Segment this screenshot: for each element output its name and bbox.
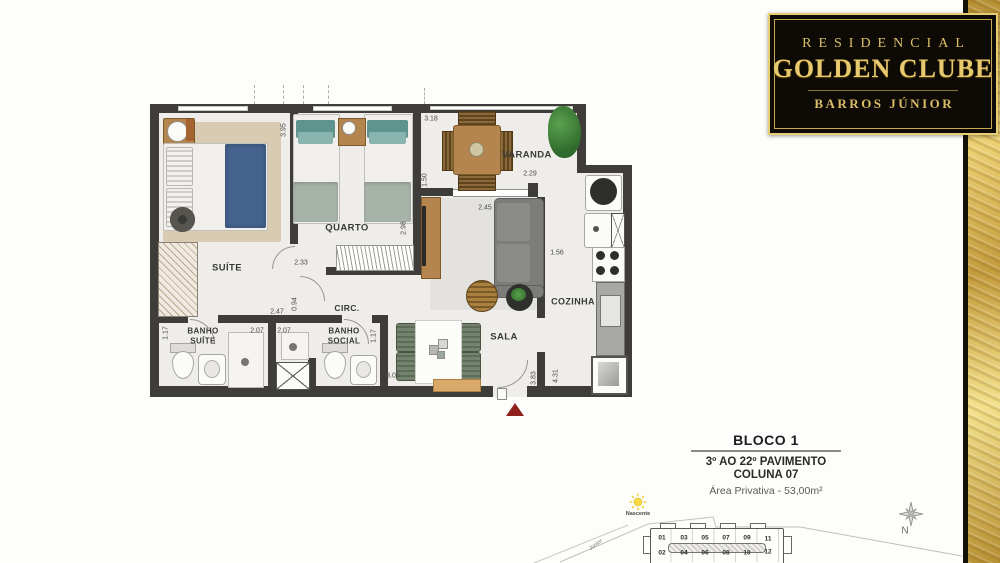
unit-number: 04 [680, 550, 687, 557]
varanda-chair-bottom [458, 174, 496, 191]
dim-1-50: 1.50 [422, 173, 429, 187]
counter-sink [600, 295, 621, 327]
pavimento-line: 3º AO 22º PAVIMENTO [706, 456, 826, 468]
varanda-plant [548, 106, 581, 158]
wall-varanda-jamb [528, 183, 538, 197]
dim-2-07-b: 2.07 [277, 328, 291, 335]
bed1-blanket [293, 182, 338, 222]
dim-1-56: 1.56 [550, 250, 564, 257]
dim-3-06: 3.06 [386, 373, 400, 380]
room-label-quarto: QUARTO [325, 222, 368, 233]
fridge [590, 178, 617, 205]
unit-number: 08 [722, 550, 729, 557]
bed2-pillow-2 [369, 132, 406, 144]
sofa-cushion [497, 203, 530, 241]
north-label: N [901, 526, 908, 537]
dining-chair [459, 323, 481, 352]
burner [610, 251, 619, 260]
unit-number: 01 [658, 535, 665, 542]
entry-door-leaf [497, 388, 507, 400]
wall-sala-cozinha-lower [537, 352, 545, 388]
wall-banho-divider [268, 315, 276, 388]
room-label-circ: CIRC. [334, 303, 359, 313]
bloco-title: BLOCO 1 [733, 432, 799, 448]
window-suite [178, 106, 248, 111]
unit-number: 12 [764, 549, 771, 556]
shower-head [241, 358, 249, 366]
unit-number: 06 [701, 550, 708, 557]
dashed-line [254, 85, 255, 104]
sun-icon [629, 493, 647, 511]
varanda-table-plate [469, 142, 484, 157]
info-divider [691, 450, 841, 452]
dim-2-29: 2.29 [523, 171, 537, 178]
coluna-line: COLUNA 07 [734, 469, 799, 481]
sink-bowl-2 [356, 361, 371, 378]
shaft [276, 362, 310, 390]
room-label-varanda: VARANDA [502, 149, 552, 160]
logo-barros-junior: BARROS JÚNIOR [812, 96, 954, 112]
dim-1-17-b: 1.17 [371, 329, 378, 343]
bed2-blanket [364, 182, 411, 222]
dashed-line [424, 88, 425, 104]
room-label-sala: SALA [490, 331, 517, 342]
logo-golden-clube: GOLDEN CLUBE [773, 54, 994, 84]
nascente-label: Nascente [626, 511, 650, 517]
burner [596, 251, 605, 260]
logo-divider [808, 90, 958, 91]
washer-glass [598, 362, 619, 386]
dining-chair [459, 352, 481, 381]
dim-2-98: 2.98 [401, 221, 408, 235]
dim-2-45: 2.45 [478, 205, 492, 212]
kitchen-cabinet [611, 213, 625, 248]
bed1-pillow-2 [298, 132, 333, 144]
unit-number: 05 [701, 535, 708, 542]
suite-wood-accent [186, 119, 194, 141]
suite-bed-throw [225, 144, 266, 228]
burner [610, 266, 619, 275]
logo-plaque: RESIDENCIAL GOLDEN CLUBE BARROS JÚNIOR [768, 13, 998, 135]
dim-4-31: 4.31 [553, 369, 560, 383]
varanda-railing [430, 106, 573, 110]
unit-number: 02 [658, 550, 665, 557]
kitchen-faucet [593, 226, 599, 232]
dim-3-18: 3.18 [424, 116, 438, 123]
entrance-arrow-icon [506, 403, 524, 416]
room-label-cozinha: COZINHA [551, 297, 595, 308]
suite-pillow [166, 147, 193, 186]
tv [422, 206, 426, 266]
dim-3-83: 3.83 [531, 371, 538, 385]
unit-number: 07 [722, 535, 729, 542]
sofa-cushion [497, 244, 530, 282]
wall-varanda-bottom [421, 188, 453, 196]
suite-wardrobe [158, 242, 198, 317]
room-label-suite: SUÍTE [212, 262, 242, 273]
room-label-banho-social: BANHO SOCIAL [328, 326, 361, 345]
unit-number: 10 [743, 550, 750, 557]
page: RESIDENCIAL GOLDEN CLUBE BARROS JÚNIOR [0, 0, 1000, 563]
window-quarto [313, 106, 392, 111]
dim-2-33: 2.33 [294, 260, 308, 267]
dashed-line [328, 85, 329, 104]
sink-bowl [204, 360, 220, 378]
quarto-shelf [336, 245, 414, 271]
dim-2-47: 2.47 [270, 309, 284, 316]
table-decor [438, 339, 448, 349]
suite-lamp [167, 121, 188, 142]
dim-3-95: 3.95 [281, 123, 288, 137]
shower-head-2 [289, 343, 297, 351]
logo-residencial: RESIDENCIAL [795, 36, 971, 52]
wall-cozinha-top [577, 165, 632, 173]
sideboard [433, 379, 481, 392]
suite-floor-lamp [170, 207, 195, 232]
dim-2-07-a: 2.07 [250, 328, 264, 335]
dashed-line [283, 85, 284, 104]
room-label-banho-suite: BANHO SUÍTE [187, 326, 218, 345]
burner [596, 266, 605, 275]
unit-number: 09 [743, 535, 750, 542]
dim-1-17-a: 1.17 [163, 326, 170, 340]
wall-banho-top-2 [218, 315, 342, 323]
dashed-line [303, 85, 304, 104]
dim-0-94: 0.94 [292, 297, 299, 311]
coffee-table [466, 280, 498, 312]
info-block: BLOCO 1 3º AO 22º PAVIMENTO COLUNA 07 Ár… [650, 432, 882, 497]
quarto-lamp [342, 121, 356, 135]
table-decor [437, 351, 445, 359]
unit-number: 11 [765, 536, 772, 543]
unit-number: 03 [680, 535, 687, 542]
wall-quarto-right [413, 104, 421, 274]
compass-icon [898, 501, 924, 527]
side-table-plant [511, 288, 526, 301]
